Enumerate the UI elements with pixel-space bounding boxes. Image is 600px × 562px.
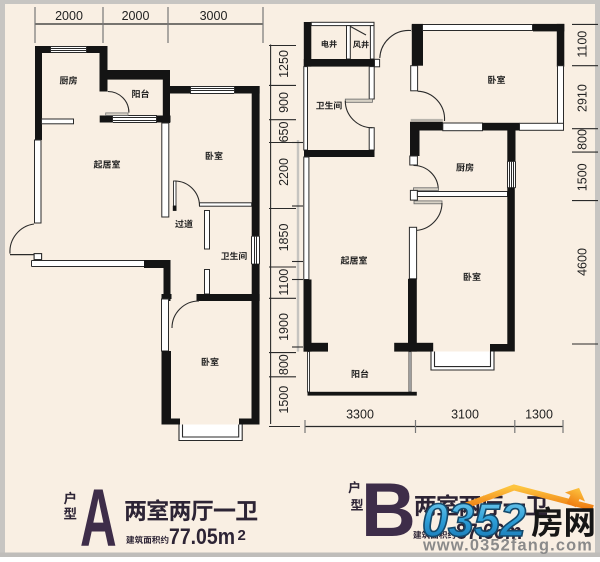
svg-text:A: A bbox=[80, 473, 117, 557]
svg-text:1300: 1300 bbox=[525, 408, 553, 422]
svg-text:2000: 2000 bbox=[55, 9, 83, 23]
svg-text:2000: 2000 bbox=[122, 9, 150, 23]
svg-text:800: 800 bbox=[576, 129, 590, 150]
svg-text:650: 650 bbox=[277, 122, 291, 143]
svg-text:1100: 1100 bbox=[277, 269, 291, 296]
svg-text:1900: 1900 bbox=[277, 313, 291, 341]
svg-text:900: 900 bbox=[277, 92, 291, 113]
svg-text:1500: 1500 bbox=[576, 163, 590, 191]
svg-text:2: 2 bbox=[238, 527, 246, 544]
svg-text:3100: 3100 bbox=[451, 408, 479, 422]
svg-text:2200: 2200 bbox=[277, 158, 291, 186]
svg-text:4600: 4600 bbox=[576, 248, 590, 276]
svg-text:www.0352fang.com: www.0352fang.com bbox=[422, 536, 593, 555]
svg-text:3300: 3300 bbox=[346, 408, 374, 422]
svg-text:1500: 1500 bbox=[277, 386, 291, 414]
svg-text:1100: 1100 bbox=[576, 31, 590, 58]
svg-text:1250: 1250 bbox=[277, 50, 291, 78]
svg-text:3000: 3000 bbox=[200, 9, 228, 23]
svg-text:B: B bbox=[361, 468, 416, 553]
svg-text:1850: 1850 bbox=[277, 224, 291, 252]
svg-text:2910: 2910 bbox=[576, 84, 590, 112]
svg-text:77.05m: 77.05m bbox=[169, 524, 235, 549]
svg-text:800: 800 bbox=[277, 354, 291, 375]
